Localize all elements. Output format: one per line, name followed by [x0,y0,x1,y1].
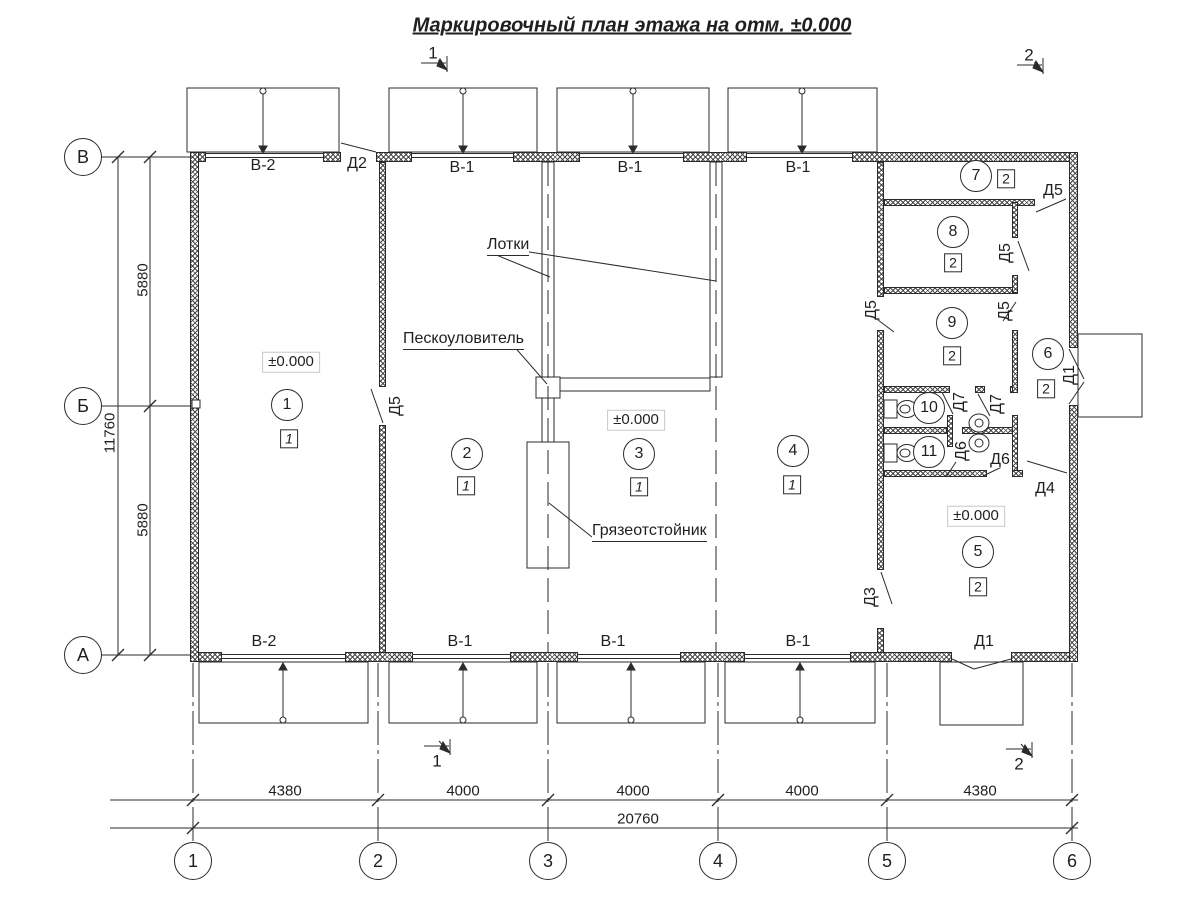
dimension-value: 5880 [136,501,151,538]
loading-ramps-bottom [199,662,1023,725]
dimension-lines-left [102,151,200,661]
grid-column-bubble: 6 [1053,842,1091,880]
room-number-circle: 11 [913,436,945,468]
sink [969,414,989,452]
room-category-box: 1 [630,477,648,496]
door-label: Д5 [998,242,1014,264]
drainage-system [527,162,722,653]
dimension-total: 11760 [103,411,118,456]
room-number-circle: 1 [271,389,303,421]
door-label: Д3 [863,586,879,608]
section-mark-number: 1 [427,45,438,62]
tray-horizontal [560,378,710,391]
trays-annotation: Лотки [487,236,529,256]
room-number-circle: 9 [936,307,968,339]
room-category-box: 1 [783,475,801,494]
room-category-box: 1 [280,429,298,448]
door-label: Д5 [1042,183,1064,199]
window-label: В-1 [449,160,476,176]
dimension-value: 4380 [266,784,303,799]
window-label: В-1 [447,634,474,650]
door-label: Д1 [1062,364,1078,386]
section-mark-number: 2 [1023,47,1034,64]
window-label: В-1 [785,634,812,650]
elevation-mark: ±0.000 [262,352,320,373]
porch-east [1078,334,1142,417]
room-number-circle: 3 [623,438,655,470]
grid-column-bubble: 2 [359,842,397,880]
grid-column-bubble: 1 [174,842,212,880]
room-number-circle: 2 [451,438,483,470]
room-category-box: 2 [943,346,961,365]
door-label: Д4 [1034,481,1056,497]
section-mark-number: 2 [1013,756,1024,773]
window-label: В-2 [250,158,277,174]
door-label: Д6 [954,440,970,462]
dimension-value: 4380 [961,784,998,799]
room-number-circle: 10 [913,392,945,424]
room-number-circle: 5 [962,536,994,568]
section-mark-number: 1 [431,753,442,770]
sand-trap-annotation: Пескоуловитель [403,330,524,350]
door-label: Д2 [346,156,368,172]
dimension-value: 5880 [136,261,151,298]
door-label: Д5 [864,299,880,321]
loading-ramps-top [187,88,877,153]
dimension-total: 20760 [615,812,661,827]
grid-row-bubble: Б [64,387,102,425]
room-number-circle: 8 [937,216,969,248]
window-label: В-1 [785,160,812,176]
room-number-circle: 7 [960,160,992,192]
room-category-box: 2 [1037,379,1055,398]
grid-row-bubble: В [64,138,102,176]
axis-wall-marker [192,400,200,408]
dimension-value: 4000 [444,784,481,799]
drawing-title: Маркировочный план этажа на отм. ±0.000 [413,15,852,38]
porch-south [940,662,1023,725]
grid-row-bubble: А [64,636,102,674]
room-category-box: 2 [944,253,962,272]
room-number-circle: 6 [1032,338,1064,370]
room-category-box: 1 [457,476,475,495]
dimension-value: 4000 [614,784,651,799]
room-category-box: 2 [969,577,987,596]
window-label: В-2 [251,634,278,650]
grid-column-bubble: 5 [868,842,906,880]
room-number-circle: 4 [777,435,809,467]
elevation-mark: ±0.000 [947,506,1005,527]
door-label: Д5 [997,300,1013,322]
dimension-value: 4000 [783,784,820,799]
door-label: Д7 [952,391,968,413]
elevation-mark: ±0.000 [607,410,665,431]
window-label: В-1 [617,160,644,176]
dimension-lines-bottom [110,663,1078,841]
door-label: Д5 [388,395,404,417]
grid-column-bubble: 4 [699,842,737,880]
window-label: В-1 [600,634,627,650]
floor-plan-sheet: Маркировочный план этажа на отм. ±0.000 [0,0,1200,900]
grid-column-bubble: 3 [529,842,567,880]
room-category-box: 2 [997,169,1015,188]
mud-settler-annotation: Грязеотстойник [592,522,707,542]
door-label: Д1 [973,634,995,650]
door-label: Д6 [989,452,1011,468]
door-label: Д7 [989,393,1005,415]
annotation-leaders [489,251,716,537]
